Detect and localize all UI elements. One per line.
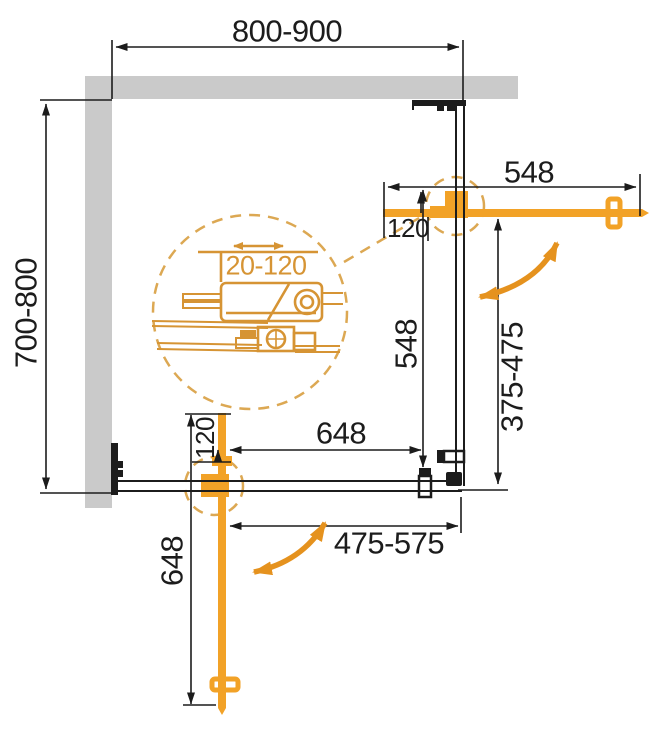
dim-right-door-length: 548 xyxy=(504,157,554,188)
dim-profile-adjustment: 20-120 xyxy=(225,253,306,280)
dim-top-width: 800-900 xyxy=(232,16,342,47)
dim-side-panel-depth: 548 xyxy=(391,319,422,369)
screw-large-inner xyxy=(301,296,313,308)
door-bottom-hinge-block xyxy=(201,474,229,497)
door-right-hinge-cap xyxy=(430,206,445,218)
wall-profile-left xyxy=(111,443,118,495)
wall-left xyxy=(85,99,112,508)
wall-top xyxy=(85,76,518,99)
clamp-body xyxy=(444,451,464,462)
dim-left-depth: 700-800 xyxy=(11,258,42,368)
glass-clamp-right-panel xyxy=(437,450,464,463)
wall-plate-bar-1 xyxy=(183,294,221,300)
right-stub-lines xyxy=(322,293,343,304)
dim-bottom-door-length: 648 xyxy=(157,536,188,586)
dim-bottom-door-inset: 120 xyxy=(192,417,218,459)
swing-arrow-bottom-door xyxy=(254,523,325,572)
screw-large-outer xyxy=(295,290,319,314)
corner-bracket xyxy=(446,472,462,486)
wall-profile-left-notch-2 xyxy=(118,470,123,477)
wall-profile-top-notch-2 xyxy=(447,106,455,111)
dimension-lines xyxy=(40,40,640,705)
door-bottom-tip xyxy=(218,708,226,715)
shower-enclosure-technical-drawing: 800-900 700-800 548 120 548 375-475 648 … xyxy=(0,0,661,732)
profile-housing-detail xyxy=(226,284,316,320)
dim-bottom-opening: 475-575 xyxy=(334,528,444,559)
glass-clamp-bottom-panel xyxy=(419,468,431,497)
wall-profile-left-notch-1 xyxy=(118,461,123,468)
door-right-tip xyxy=(642,209,649,217)
drawing-canvas xyxy=(0,0,661,732)
dim-right-opening: 375-475 xyxy=(497,322,528,432)
fixed-structure xyxy=(111,100,466,497)
wall-plate-bar-2 xyxy=(183,302,221,308)
clamp-pad xyxy=(240,330,256,337)
clamp-base xyxy=(236,338,258,348)
dim-right-door-inset: 120 xyxy=(387,215,429,241)
wall-profile-top-notch-1 xyxy=(437,106,444,111)
swing-arrow-right-door xyxy=(480,243,557,297)
clamp-body xyxy=(419,476,431,497)
wall-profile-top xyxy=(413,100,466,106)
glass-edge-lines-upper xyxy=(152,321,268,328)
dim-bottom-panel-width: 648 xyxy=(316,418,366,449)
clamp-side-block xyxy=(294,333,315,350)
